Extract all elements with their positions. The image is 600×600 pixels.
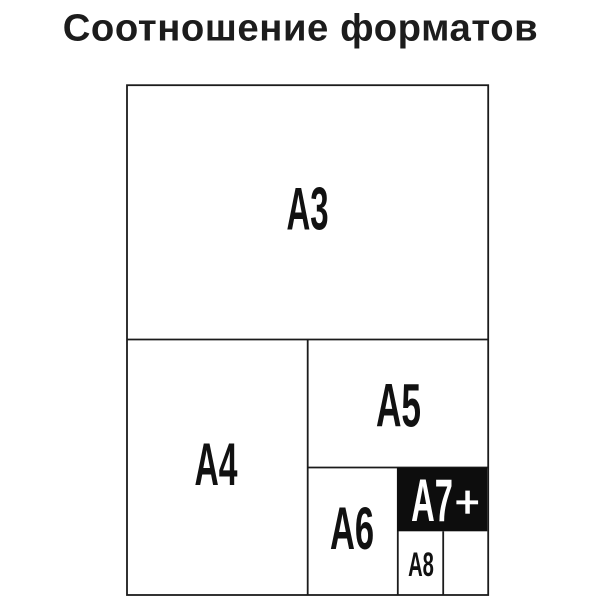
svg-text:Соотношение форматов: Соотношение форматов	[63, 6, 539, 49]
svg-text:A3: A3	[286, 176, 328, 243]
svg-text:A4: A4	[194, 432, 237, 499]
svg-text:A7: A7	[411, 468, 453, 535]
svg-text:A6: A6	[330, 496, 374, 562]
svg-text:A5: A5	[376, 371, 421, 440]
svg-text:A8: A8	[408, 545, 434, 583]
